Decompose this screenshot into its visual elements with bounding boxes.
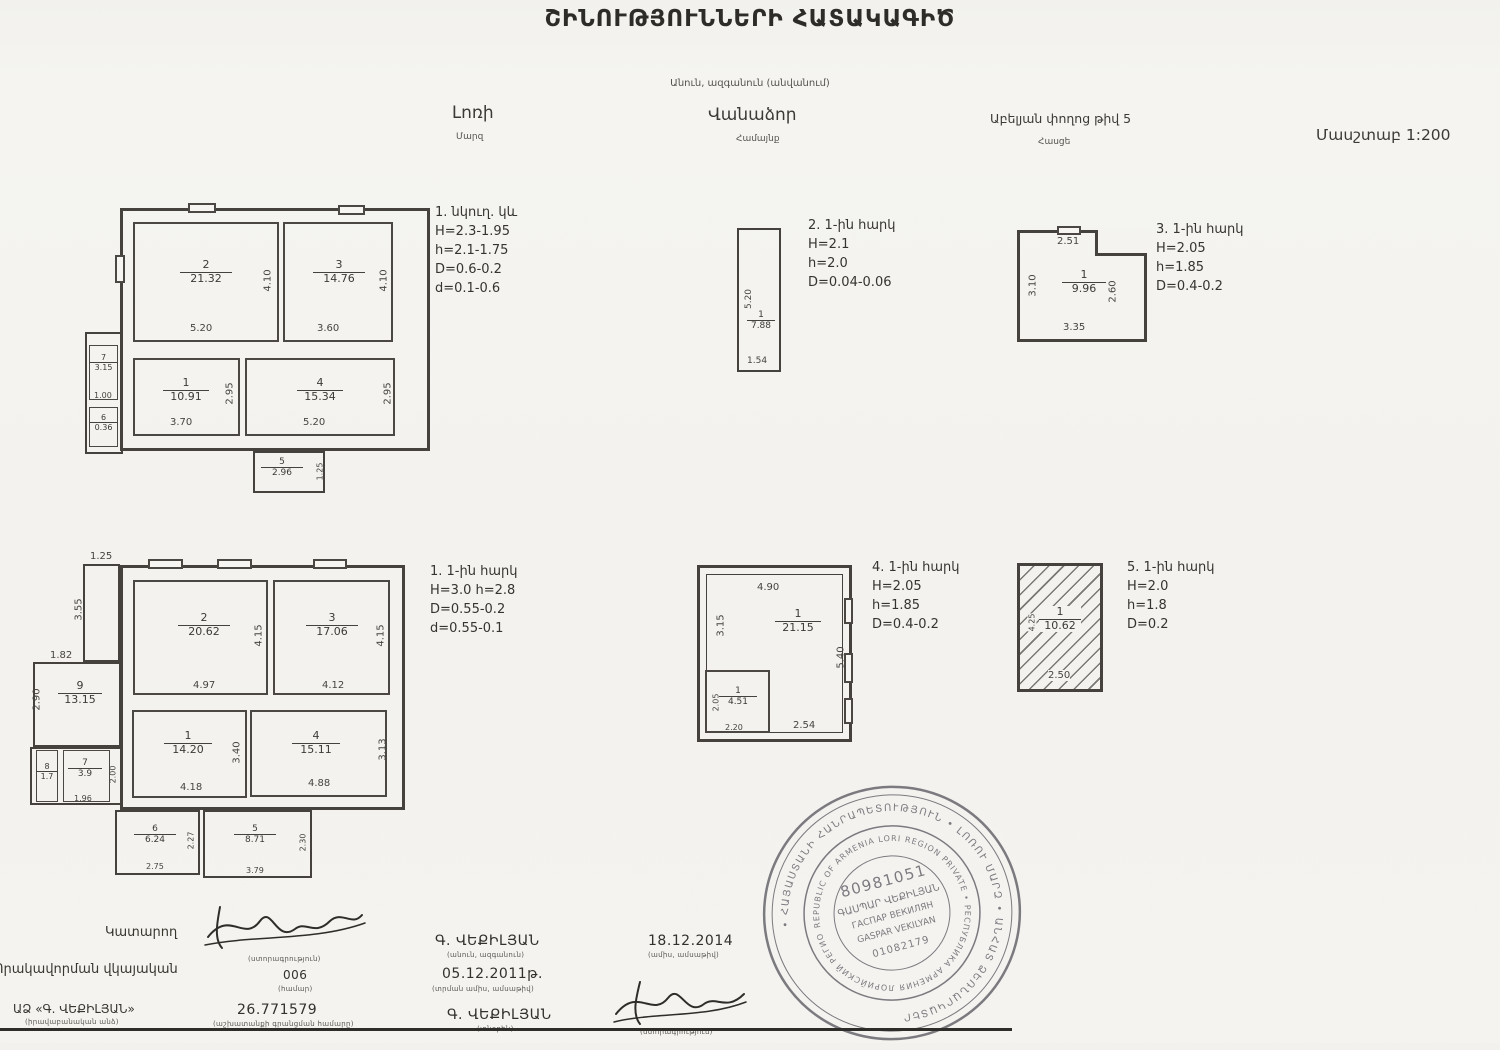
note-line: H=2.0 [1127, 577, 1215, 596]
community-value: Վանաձոր [708, 105, 797, 125]
dim-width: 5.20 [190, 323, 212, 334]
company-caption: (իրավաբանական անձ) [25, 1018, 119, 1026]
dim-height: 3.40 [232, 741, 243, 763]
room-label: 1 21.15 [775, 608, 821, 634]
note-line: d=0.55-0.1 [430, 619, 518, 638]
window-symbol [115, 255, 125, 283]
dim-width: 3.79 [246, 866, 264, 875]
room-area: 1.7 [36, 772, 58, 781]
plan-note-floor1: 1. 1-ին հարկ H=3.0 h=2.8 D=0.55-0.2 d=0.… [430, 562, 518, 638]
address-value: Աբելյան փողոց թիվ 5 [990, 111, 1131, 126]
window-symbol [313, 559, 347, 569]
plan-note-wing3: 3. 1-ին հարկ H=2.05 h=1.85 D=0.4-0.2 [1156, 220, 1244, 296]
dim-width: 3.70 [170, 417, 192, 428]
signature-glyph [610, 972, 750, 1030]
room-label: 2 21.32 [180, 259, 232, 285]
registration-caption: (աշխատանքի գրանցման համարը) [213, 1020, 354, 1028]
director-name: Գ. ՎԵՔԻԼՅԱՆ [447, 1007, 552, 1023]
bottom-rule [0, 1028, 1012, 1031]
room-area: 4.51 [719, 697, 757, 707]
room-label: 1 10.62 [1039, 606, 1081, 632]
room-number: 3 [306, 612, 358, 626]
dim-bottom: 2.54 [793, 720, 815, 731]
window-symbol [844, 598, 853, 624]
dim-left: 3.15 [716, 614, 727, 636]
room-label: 3 17.06 [306, 612, 358, 638]
outline-notch [1095, 230, 1147, 256]
room-area: 3.15 [89, 363, 118, 372]
region-value: Լոռի [452, 103, 494, 123]
dim-width: 2.75 [146, 862, 164, 871]
room-label: 4 15.11 [292, 730, 340, 756]
room-number: 1 [775, 608, 821, 622]
room-label: 5 2.96 [261, 457, 303, 479]
room-area: 15.11 [292, 744, 340, 757]
note-line: D=0.4-0.2 [1156, 277, 1244, 296]
window-symbol [1057, 226, 1081, 235]
dim-right: 5.40 [836, 646, 847, 668]
dim-top: 2.51 [1057, 236, 1079, 247]
room-number: 4 [297, 377, 343, 391]
signature-glyph [200, 893, 370, 955]
dim-height: 4.15 [254, 624, 265, 646]
dim-bottom: 2.50 [1048, 670, 1070, 681]
room-number: 9 [58, 680, 102, 694]
room-number: 1 [719, 686, 757, 697]
floor-plan-wing2: 5.20 1 7.88 1.54 [735, 222, 790, 377]
note-line: D=0.55-0.2 [430, 600, 518, 619]
floor-plan-wing4: 4.90 1 21.15 3.15 5.40 1 4.51 2.05 2.20 … [695, 558, 870, 753]
dim-height: 4.10 [379, 269, 390, 291]
certificate-date: 05.12.2011թ. [442, 966, 543, 982]
floor-plan-wing5: 1 10.62 4.25 2.50 [1015, 558, 1115, 698]
note-line: h=1.8 [1127, 596, 1215, 615]
room-number: 1 [163, 377, 209, 391]
floor-plan-basement: 2 21.32 5.20 4.10 3 14.76 3.60 4.10 1 10… [85, 195, 440, 505]
window-symbol [844, 698, 853, 724]
executor-name: Գ. ՎԵՔԻԼՅԱՆ [435, 933, 540, 949]
window-symbol [188, 203, 216, 213]
room-number: 4 [292, 730, 340, 744]
dim-annex-left: 2.90 [32, 688, 43, 710]
plan-note-wing5: 5. 1-ին հարկ H=2.0 h=1.8 D=0.2 [1127, 558, 1215, 634]
room-label: 1 4.51 [719, 686, 757, 708]
room-area: 7.88 [747, 321, 775, 331]
note-line: H=2.3-1.95 [435, 222, 517, 241]
room-number: 1 [164, 730, 212, 744]
room-number: 1 [747, 310, 775, 321]
dim-height: 2.27 [186, 832, 195, 850]
dim-width: 3.60 [317, 323, 339, 334]
room-area: 14.20 [164, 744, 212, 757]
room-label: 1 7.88 [747, 310, 775, 332]
room-label: 1 10.91 [163, 377, 209, 403]
room-area: 15.34 [297, 391, 343, 404]
scanned-document: { "title": "ՇԻՆՈՒԹՅՈՒՆՆԵՐԻ ՀԱՏԱԿԱԳԻԾ", "… [0, 0, 1500, 1043]
room-label: 7 3.15 [89, 353, 118, 372]
company-name: ԱՁ «Գ. ՎԵՔԻԼՅԱՆ» [13, 1002, 135, 1016]
note-line: D=0.6-0.2 [435, 260, 517, 279]
dim-left: 3.55 [74, 598, 85, 620]
room-label: 8 1.7 [36, 762, 58, 781]
room-number: 1 [1039, 606, 1081, 620]
note-line: h=1.85 [872, 596, 960, 615]
certificate-number: 006 [283, 968, 307, 982]
room-number: 3 [313, 259, 365, 273]
official-stamp: • ՀԱՅԱՍՏԱՆԻ ՀԱՆՐԱՊԵՏՈՒԹՅՈՒՆ • ԼՈՌՈՒ ՄԱՐԶ… [752, 780, 1032, 1050]
note-line: 4. 1-ին հարկ [872, 558, 960, 577]
room-area: 20.62 [178, 626, 230, 639]
window-symbol [148, 559, 183, 569]
plan-note-wing2: 2. 1-ին հարկ H=2.1 h=2.0 D=0.04-0.06 [808, 216, 896, 292]
dim-right: 2.60 [1108, 280, 1119, 302]
dim-annex-top: 1.82 [50, 650, 72, 661]
document-date-caption: (ամիս, ամսաթիվ) [648, 951, 719, 959]
note-line: 1. 1-ին հարկ [430, 562, 518, 581]
note-line: D=0.2 [1127, 615, 1215, 634]
note-line: 5. 1-ին հարկ [1127, 558, 1215, 577]
room-area: 6.24 [134, 835, 176, 845]
scale-label: Մասշտաբ 1:200 [1316, 126, 1451, 144]
room-label: 2 20.62 [178, 612, 230, 638]
window-symbol [217, 559, 252, 569]
dim-width: 4.97 [193, 680, 215, 691]
region-label: Մարզ [456, 132, 483, 142]
room-number: 6 [134, 824, 176, 835]
room-number: 5 [261, 457, 303, 468]
room-label: 6 0.36 [89, 413, 118, 432]
room-area: 9.96 [1062, 283, 1106, 296]
note-line: H=3.0 h=2.8 [430, 581, 518, 600]
executor-signature [200, 893, 370, 955]
dim-height: 5.20 [744, 289, 754, 309]
room-label: 1 9.96 [1062, 269, 1106, 295]
room-number: 2 [180, 259, 232, 273]
floor-plan-wing3: 2.51 1 9.96 3.10 2.60 3.35 [1015, 226, 1160, 351]
dim-height: 1.25 [315, 463, 324, 481]
dim-bottom: 3.35 [1063, 322, 1085, 333]
room-area: 3.9 [68, 769, 102, 779]
note-line: 2. 1-ին հարկ [808, 216, 896, 235]
note-line: d=0.1-0.6 [435, 279, 517, 298]
dim-width: 1.00 [94, 391, 112, 400]
dim-width: 5.20 [303, 417, 325, 428]
executor-label: Կատարող [105, 925, 177, 940]
director-signature [610, 972, 750, 1030]
note-line: h=1.85 [1156, 258, 1244, 277]
dim-top: 1.25 [90, 551, 112, 562]
dim-height: 4.15 [376, 624, 387, 646]
dim-width: 1.54 [747, 356, 767, 366]
room-area: 8.71 [234, 835, 276, 845]
room-number: 1 [1062, 269, 1106, 283]
note-line: H=2.1 [808, 235, 896, 254]
dim-height: 4.10 [263, 269, 274, 291]
room-label: 7 3.9 [68, 758, 102, 780]
dim-height: 3.13 [378, 738, 389, 760]
dim-top: 4.90 [757, 582, 779, 593]
room-label: 1 14.20 [164, 730, 212, 756]
room-label: 4 15.34 [297, 377, 343, 403]
registration-number: 26.771579 [237, 1002, 317, 1018]
floor-plan-floor1: 1.25 3.55 1.82 2 20.62 4.97 4.15 3 17.06… [30, 552, 435, 892]
room-number: 7 [68, 758, 102, 769]
room-number: 6 [89, 413, 118, 423]
note-line: D=0.4-0.2 [872, 615, 960, 634]
plan-note-basement: 1. նկուղ. կև H=2.3-1.95 h=2.1-1.75 D=0.6… [435, 203, 517, 298]
note-line: h=2.1-1.75 [435, 241, 517, 260]
dim-left: 3.10 [1028, 274, 1039, 296]
stamp-graphic: • ՀԱՅԱՍՏԱՆԻ ՀԱՆՐԱՊԵՏՈՒԹՅՈՒՆ • ԼՈՌՈՒ ՄԱՐԶ… [752, 780, 1032, 1050]
room-area: 21.15 [775, 622, 821, 635]
community-label: Համայնք [736, 134, 780, 144]
room-label: 5 8.71 [234, 824, 276, 846]
dim-width: 4.88 [308, 778, 330, 789]
room-number: 8 [36, 762, 58, 772]
document-date: 18.12.2014 [648, 933, 733, 949]
executor-name-caption: (անուն, ազգանուն) [447, 951, 524, 959]
dim-left: 2.05 [711, 694, 720, 712]
room-area: 17.06 [306, 626, 358, 639]
certificate-caption: (համար) [278, 985, 313, 993]
note-line: H=2.05 [1156, 239, 1244, 258]
room-number: 5 [234, 824, 276, 835]
room-label: 6 6.24 [134, 824, 176, 846]
room-area: 0.36 [89, 423, 118, 432]
room-area: 14.76 [313, 273, 365, 286]
annex-strip-outline [83, 564, 120, 662]
window-symbol [338, 205, 365, 215]
plan-note-wing4: 4. 1-ին հարկ H=2.05 h=1.85 D=0.4-0.2 [872, 558, 960, 634]
qualification-label: Որակավորման վկայական [0, 962, 178, 977]
room-number: 7 [89, 353, 118, 363]
room-area: 21.32 [180, 273, 232, 286]
dim-height: 2.95 [225, 382, 236, 404]
note-line: D=0.04-0.06 [808, 273, 896, 292]
dim-width: 1.96 [74, 794, 92, 803]
note-line: H=2.05 [872, 577, 960, 596]
room-area: 10.62 [1039, 620, 1081, 633]
room-label: 9 13.15 [58, 680, 102, 706]
room-area: 2.96 [261, 468, 303, 478]
room-area: 13.15 [58, 694, 102, 707]
dim-width: 4.12 [322, 680, 344, 691]
dim-height: 2.95 [383, 382, 394, 404]
note-line: 3. 1-ին հարկ [1156, 220, 1244, 239]
page-title: ՇԻՆՈՒԹՅՈՒՆՆԵՐԻ ՀԱՏԱԿԱԳԻԾ [0, 6, 1500, 32]
signature-caption: (ստորագրություն) [248, 955, 321, 963]
certificate-date-caption: (տրման ամիս, ամսաթիվ) [432, 985, 534, 993]
room-number: 2 [178, 612, 230, 626]
dim-bottom: 2.20 [725, 723, 743, 732]
dim-left: 4.25 [1027, 614, 1036, 632]
room-label: 3 14.76 [313, 259, 365, 285]
note-line: h=2.0 [808, 254, 896, 273]
dim-height: 2.30 [298, 834, 307, 852]
note-line: 1. նկուղ. կև [435, 203, 517, 222]
address-label: Հասցե [1038, 137, 1070, 147]
room-area: 10.91 [163, 391, 209, 404]
dim-height: 2.00 [108, 766, 117, 784]
page-subtitle: Անուն, ազգանուն (անվանում) [0, 78, 1500, 89]
dim-width: 4.18 [180, 782, 202, 793]
